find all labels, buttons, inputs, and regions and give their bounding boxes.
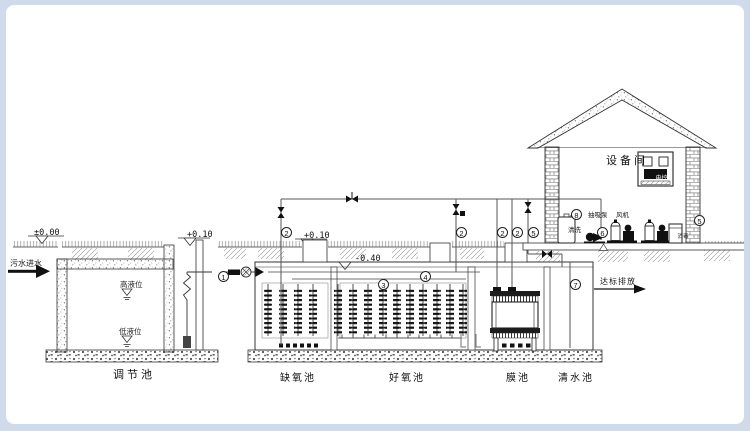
equipment-house	[523, 89, 744, 250]
screenshot-frame: 污水进水 ±0.00 +0.10 +0.10 -0.40 高液位 低液位 调节池…	[0, 0, 750, 431]
blower-label: 风机	[616, 213, 629, 220]
valve-icon	[346, 196, 352, 203]
dosing-cabinet-label: 消毒	[678, 234, 686, 240]
callout-7: 7	[570, 279, 581, 290]
blower-icons	[607, 220, 671, 244]
valve-icon	[453, 204, 460, 210]
callout-8: 8	[571, 209, 582, 220]
wash-tank-label: 清洗	[568, 227, 576, 234]
process-diagram	[6, 5, 744, 424]
diffusers	[279, 334, 481, 348]
callout-2: 2	[281, 227, 292, 238]
high-level-label: 高液位	[120, 281, 143, 289]
anoxic-tank-label: 缺氧池	[280, 374, 316, 384]
valve-icon	[278, 207, 285, 213]
level-bio-wall: +0.10	[304, 232, 330, 241]
callout-6: 6	[597, 227, 608, 238]
equipment-room-label: 设备间	[606, 156, 648, 167]
valve-icon	[525, 202, 532, 208]
clearwater-tank-label: 清水池	[558, 374, 594, 384]
biofilm-media	[264, 284, 467, 336]
callout-2: 2	[512, 227, 523, 238]
influent-label: 污水进水	[10, 260, 42, 268]
callout-3: 3	[378, 279, 389, 290]
effluent-label: 达标排放	[600, 278, 636, 286]
level-ground: ±0.00	[34, 229, 60, 238]
inline-valve-icon	[228, 270, 240, 276]
aerobic-tank-label: 好氧池	[389, 374, 425, 384]
level-regulating-wall: +0.10	[187, 231, 213, 240]
roof	[528, 89, 716, 148]
callout-5: 5	[694, 215, 705, 226]
callout-1: 1	[218, 271, 229, 282]
callout-4: 4	[420, 271, 431, 282]
membrane-module	[490, 287, 540, 351]
regulating-tank-label: 调节池	[113, 370, 155, 381]
drawing-canvas: 污水进水 ±0.00 +0.10 +0.10 -0.40 高液位 低液位 调节池…	[6, 5, 744, 424]
callout-2: 2	[456, 227, 467, 238]
control-panel-label: 电控	[650, 174, 673, 184]
membrane-tank-label: 膜池	[506, 374, 530, 384]
low-level-label: 低液位	[119, 328, 142, 336]
flow-arrow-icon	[255, 267, 264, 277]
callout-5: 5	[528, 227, 539, 238]
level-water: -0.40	[355, 255, 381, 264]
callout-2: 2	[497, 227, 508, 238]
suction-pump-label: 抽吸泵	[588, 213, 608, 220]
